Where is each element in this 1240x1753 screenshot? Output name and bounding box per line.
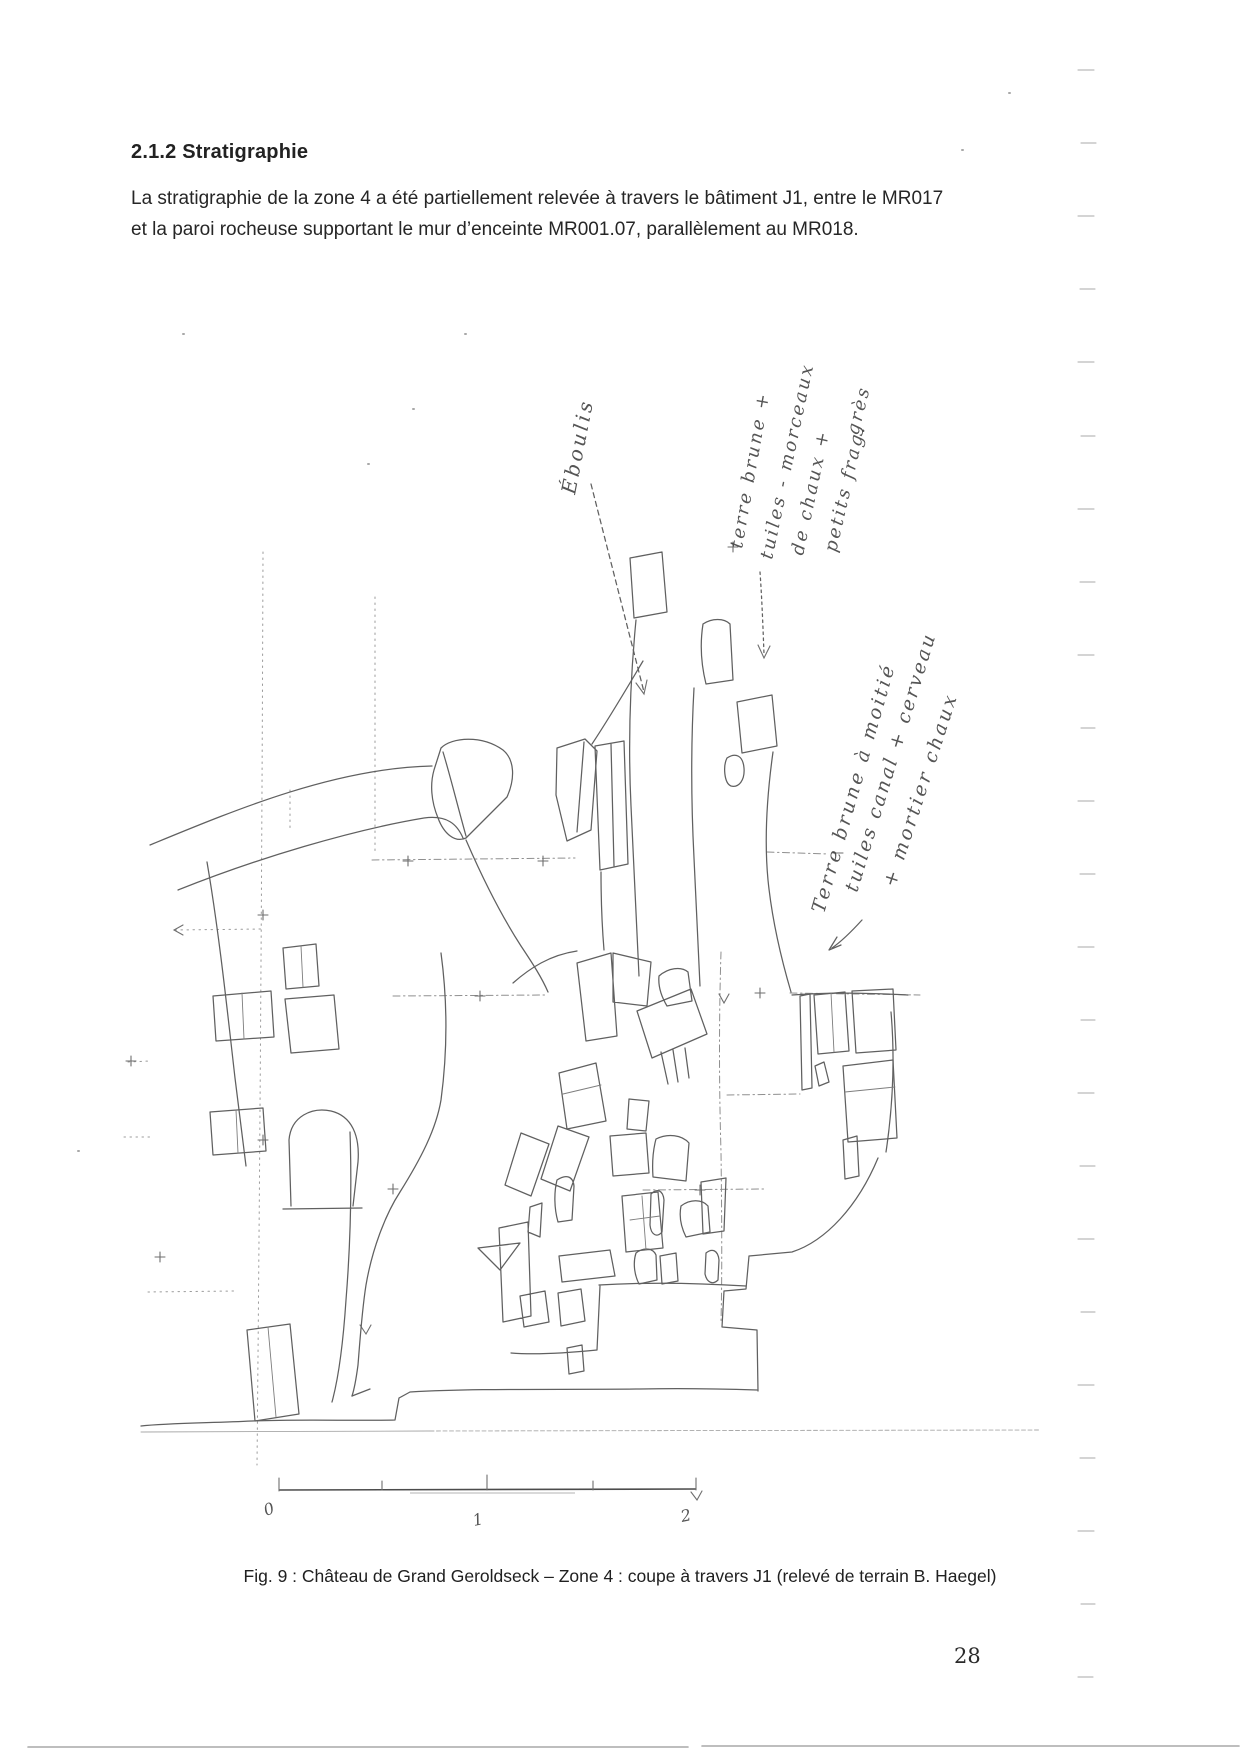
excavation-pit-profile [141, 1283, 757, 1426]
left-wall-stones [210, 944, 362, 1421]
eboulis-arrow [591, 484, 644, 692]
ruled-base-line-dotted [430, 1430, 1040, 1431]
bottom-scan-edge [28, 1746, 1239, 1747]
upper-layer-label-line: grès [842, 384, 874, 438]
scan-artifacts [28, 70, 1239, 1747]
stones [210, 552, 897, 1421]
upper-layer-arrow [760, 572, 764, 654]
lower-layer-arrow [829, 920, 862, 950]
scale-label-2: 2 [678, 1505, 693, 1526]
scale-label-1: 1 [471, 1509, 485, 1530]
scan-specks [78, 93, 1010, 1151]
scale-bar-ticks [279, 1475, 702, 1500]
ruled-base-line [141, 1431, 430, 1432]
dotted-guide-lines [124, 552, 375, 1465]
scale-label-0: 0 [261, 1498, 277, 1519]
figure-caption: Fig. 9 : Château de Grand Geroldseck – Z… [100, 1566, 1140, 1587]
scale-bar: 0 1 2 [261, 1475, 702, 1530]
handwritten-annotations: Éboulis terre brune + tuiles - morceaux … [556, 361, 962, 915]
eboulis-label: Éboulis [556, 397, 598, 497]
binding-edge-marks [1078, 70, 1096, 1677]
page-number: 28 [954, 1644, 981, 1668]
terrain-outlines [141, 620, 908, 1426]
stone-inner-lines [236, 946, 895, 1417]
scanned-report-page: 2.1.2 Stratigraphie La stratigraphie de … [0, 0, 1240, 1753]
stratigraphy-section-sketch: Éboulis terre brune + tuiles - morceaux … [0, 0, 1240, 1753]
survey-cross-ticks [126, 542, 843, 1334]
dash-dot-level-lines [372, 852, 920, 1322]
